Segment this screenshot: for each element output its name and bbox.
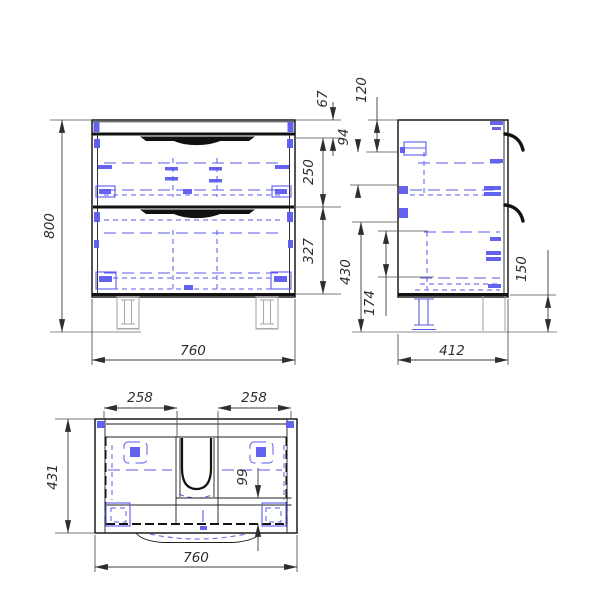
dimensions-top: 258 258 431 99 760 (45, 390, 297, 572)
side-lower-zone-label: 430 (338, 259, 354, 285)
siphon-cutout (182, 438, 211, 489)
side-inner-offset-label: 174 (362, 290, 378, 316)
front-toprail-label: 67 (315, 90, 331, 108)
side-leg-height-label: 150 (514, 256, 530, 282)
top-view (95, 419, 297, 543)
lower-drawer-handle (140, 210, 255, 219)
front-lower-drawer-label: 327 (301, 238, 317, 264)
top-front-clearance-label: 99 (235, 468, 251, 485)
front-legs (117, 297, 278, 329)
top-width-label: 760 (183, 550, 209, 566)
upper-drawer-handle (140, 137, 255, 146)
side-bracket-offset-label: 94 (336, 128, 352, 145)
side-legs (412, 296, 505, 331)
front-view (92, 120, 295, 329)
drawing-canvas: 800 67 250 327 760 120 94 430 174 (0, 0, 600, 600)
side-depth-label: 412 (439, 343, 465, 359)
top-right-drawer-width-label: 258 (241, 390, 267, 406)
side-view (398, 120, 523, 331)
front-height-label: 800 (42, 213, 58, 239)
top-left-drawer-width-label: 258 (127, 390, 153, 406)
top-depth-label: 431 (45, 464, 61, 490)
side-top-offset-label: 120 (354, 77, 370, 103)
front-upper-drawer-label: 250 (301, 159, 317, 185)
front-width-label: 760 (180, 343, 206, 359)
side-hidden-details (399, 121, 503, 290)
dimensions-front: 800 67 250 327 760 (42, 90, 341, 365)
technical-drawing: 800 67 250 327 760 120 94 430 174 (0, 0, 600, 600)
